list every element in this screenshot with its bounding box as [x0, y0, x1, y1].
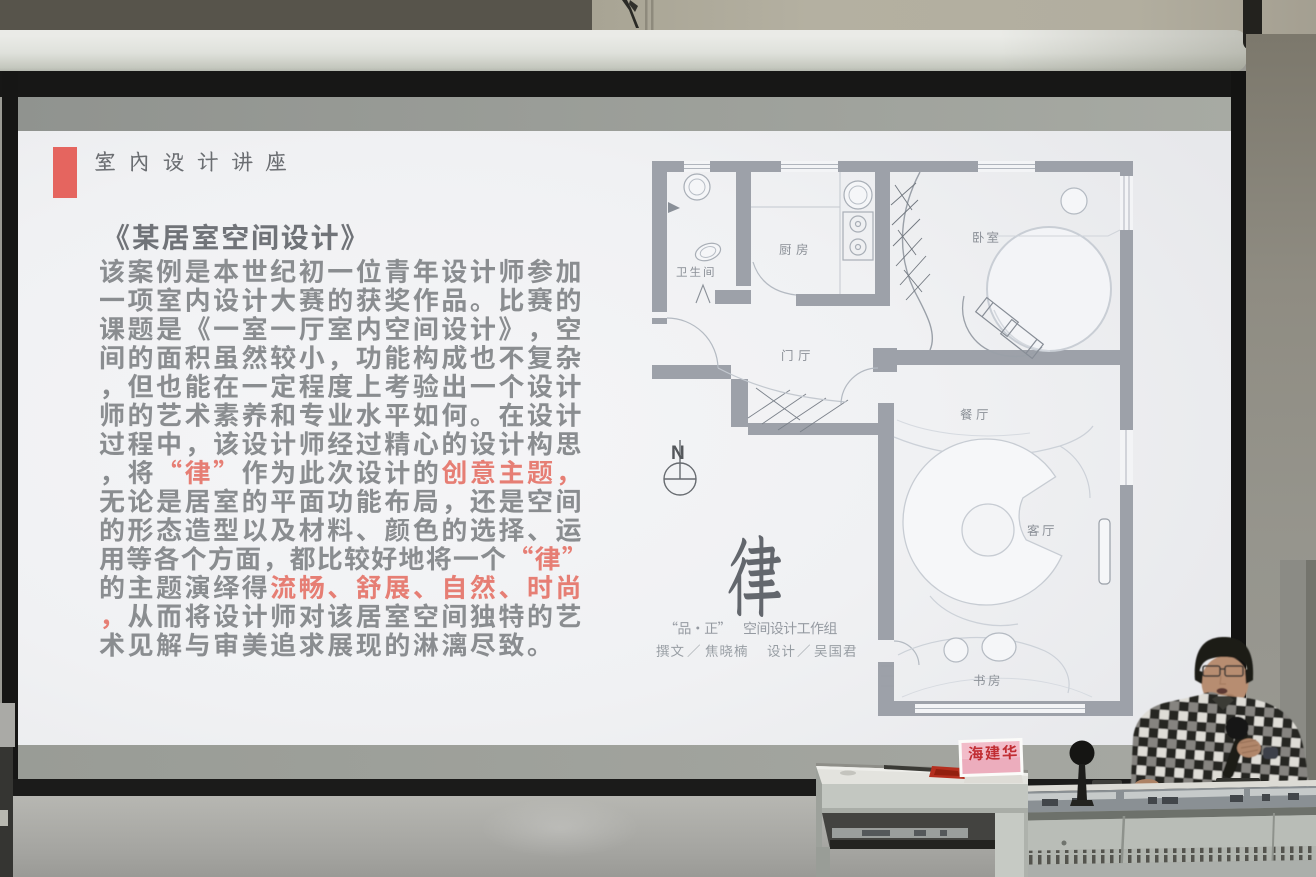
svg-text:N: N	[671, 443, 685, 464]
